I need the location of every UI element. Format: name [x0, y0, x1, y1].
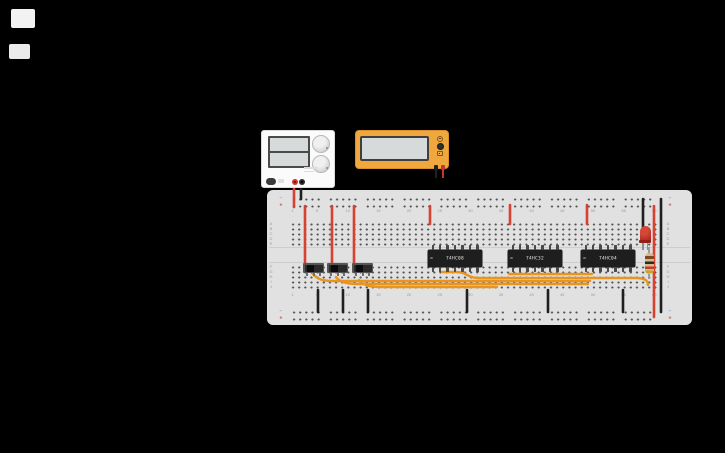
ic-pin-bottom: [541, 267, 543, 272]
column-number: 25: [437, 293, 441, 297]
multimeter[interactable]: [355, 130, 449, 169]
ic-pin-bottom: [622, 267, 624, 272]
column-number: 60: [652, 293, 656, 297]
switch-pin: [362, 273, 364, 276]
column-number: 30: [468, 293, 472, 297]
column-number: 50: [591, 293, 595, 297]
ic-pin-top: [526, 245, 528, 250]
ic-pin-bottom: [432, 267, 434, 272]
ic-pin-top: [469, 245, 471, 250]
switch-knob[interactable]: [356, 265, 363, 272]
switch-pin: [355, 273, 357, 276]
switch-pin: [313, 273, 315, 276]
rail-symbol: −: [669, 197, 672, 202]
switch-pin: [343, 273, 345, 276]
column-number: 25: [437, 209, 441, 213]
voltage-knob[interactable]: [312, 135, 330, 153]
ic-pin-bottom: [454, 267, 456, 272]
column-number: 55: [621, 209, 625, 213]
ic-pin-bottom: [534, 267, 536, 272]
led-red[interactable]: [639, 226, 651, 250]
positive-terminal-center: [294, 181, 296, 183]
column-number: 50: [591, 209, 595, 213]
ic-pin-top: [454, 245, 456, 250]
ic-pin-top: [446, 245, 448, 250]
toolbar-fragment-1[interactable]: [11, 9, 35, 28]
rail-symbol: +: [669, 317, 672, 322]
ic-pin-top: [432, 245, 434, 250]
ic-pin-top: [439, 245, 441, 250]
center-channel-line-top: [269, 247, 690, 248]
ic-pin-top: [585, 245, 587, 250]
bottom-power-rail-holes: [291, 309, 660, 323]
switch-pin: [368, 273, 370, 276]
column-number: 40: [529, 293, 533, 297]
rail-symbol: +: [280, 317, 283, 322]
upper-grid-holes: [290, 222, 659, 247]
negative-terminal[interactable]: [299, 179, 305, 185]
positive-probe-tip: [442, 170, 443, 178]
column-number: 20: [407, 293, 411, 297]
ic-label: 74HC08: [428, 256, 482, 261]
power-toggle-label-chip: [278, 179, 284, 183]
rail-symbol: +: [280, 204, 283, 209]
switch-pin: [337, 273, 339, 276]
column-number: 10: [346, 209, 350, 213]
column-number: 30: [468, 209, 472, 213]
multimeter-display: [360, 136, 429, 161]
power-supply-microtext-2: [304, 171, 314, 173]
ic-pin-bottom: [592, 267, 594, 272]
led-anode-leg: [647, 242, 648, 250]
ic-pin-top: [534, 245, 536, 250]
ic-pin-bottom: [469, 267, 471, 272]
multimeter-mode-button-bottom[interactable]: [437, 151, 443, 157]
negative-terminal-center: [301, 181, 303, 183]
column-number: 15: [376, 293, 380, 297]
ic-pin-top: [556, 245, 558, 250]
rail-symbol: −: [280, 197, 283, 202]
ic-pin-top: [549, 245, 551, 250]
row-letter: E: [667, 242, 670, 246]
ic-pin-top: [614, 245, 616, 250]
slide-switch-2[interactable]: [327, 263, 348, 273]
ic-pin-bottom: [519, 267, 521, 272]
multimeter-mode-button-top[interactable]: [437, 136, 443, 142]
column-number: 35: [499, 209, 503, 213]
ic-pin-bottom: [599, 267, 601, 272]
ic-pin-bottom: [476, 267, 478, 272]
ic-74hc08[interactable]: 74HC08: [428, 250, 482, 267]
current-knob[interactable]: [312, 155, 330, 173]
ic-74hc04[interactable]: 74HC04: [581, 250, 635, 267]
ic-pin-bottom: [439, 267, 441, 272]
column-number: 40: [529, 209, 533, 213]
column-number: 45: [560, 209, 564, 213]
ic-pin-bottom: [461, 267, 463, 272]
power-toggle[interactable]: [266, 178, 276, 185]
row-letter: J: [270, 285, 272, 289]
ic-74hc32[interactable]: 74HC32: [508, 250, 562, 267]
ic-pin-bottom: [629, 267, 631, 272]
ic-pin-bottom: [512, 267, 514, 272]
ic-pin-bottom: [556, 267, 558, 272]
column-number: 10: [346, 293, 350, 297]
switch-pin: [330, 273, 332, 276]
negative-probe-tip: [435, 170, 436, 178]
column-number: 1: [291, 293, 293, 297]
ic-pin-top: [607, 245, 609, 250]
resistor[interactable]: [645, 253, 654, 274]
positive-terminal[interactable]: [292, 179, 298, 185]
column-number: 5: [316, 293, 318, 297]
ic-pin-top: [592, 245, 594, 250]
led-cathode-leg: [642, 242, 643, 250]
led-flange: [639, 240, 651, 243]
column-number: 60: [652, 209, 656, 213]
ic-pin-top: [541, 245, 543, 250]
ic-pin-bottom: [614, 267, 616, 272]
column-number: 5: [316, 209, 318, 213]
ic-label: 74HC32: [508, 256, 562, 261]
ic-pin-bottom: [526, 267, 528, 272]
column-number: 55: [621, 293, 625, 297]
power-supply-current-display: [268, 151, 310, 168]
column-number: 35: [499, 293, 503, 297]
multimeter-mode-button-middle[interactable]: [437, 143, 444, 150]
circuit-canvas[interactable]: −+−+−+−+AABBCCDDEEFFGGHHIIJJ115510101515…: [0, 0, 725, 453]
column-number: 15: [376, 209, 380, 213]
column-number: 1: [291, 209, 293, 213]
rail-symbol: +: [669, 204, 672, 209]
column-number: 20: [407, 209, 411, 213]
ic-pin-top: [629, 245, 631, 250]
ic-pin-top: [476, 245, 478, 250]
power-supply-microtext-1: [304, 167, 318, 169]
ic-pin-top: [599, 245, 601, 250]
slide-switch-3[interactable]: [352, 263, 373, 273]
ic-pin-top: [461, 245, 463, 250]
ic-pin-top: [622, 245, 624, 250]
row-letter: J: [667, 285, 669, 289]
switch-pin: [319, 273, 321, 276]
ic-pin-bottom: [446, 267, 448, 272]
ic-pin-bottom: [549, 267, 551, 272]
switch-knob[interactable]: [331, 265, 338, 272]
power-supply[interactable]: [261, 130, 335, 188]
slide-switch-1[interactable]: [303, 263, 324, 273]
rail-symbol: −: [280, 310, 283, 315]
ic-pin-top: [512, 245, 514, 250]
ic-pin-bottom: [585, 267, 587, 272]
ic-pin-top: [519, 245, 521, 250]
ic-label: 74HC04: [581, 256, 635, 261]
rail-symbol: −: [669, 310, 672, 315]
ic-pin-bottom: [607, 267, 609, 272]
row-letter: E: [270, 242, 273, 246]
column-number: 45: [560, 293, 564, 297]
toolbar-fragment-2[interactable]: [9, 44, 30, 59]
switch-knob[interactable]: [307, 265, 314, 272]
switch-pin: [306, 273, 308, 276]
